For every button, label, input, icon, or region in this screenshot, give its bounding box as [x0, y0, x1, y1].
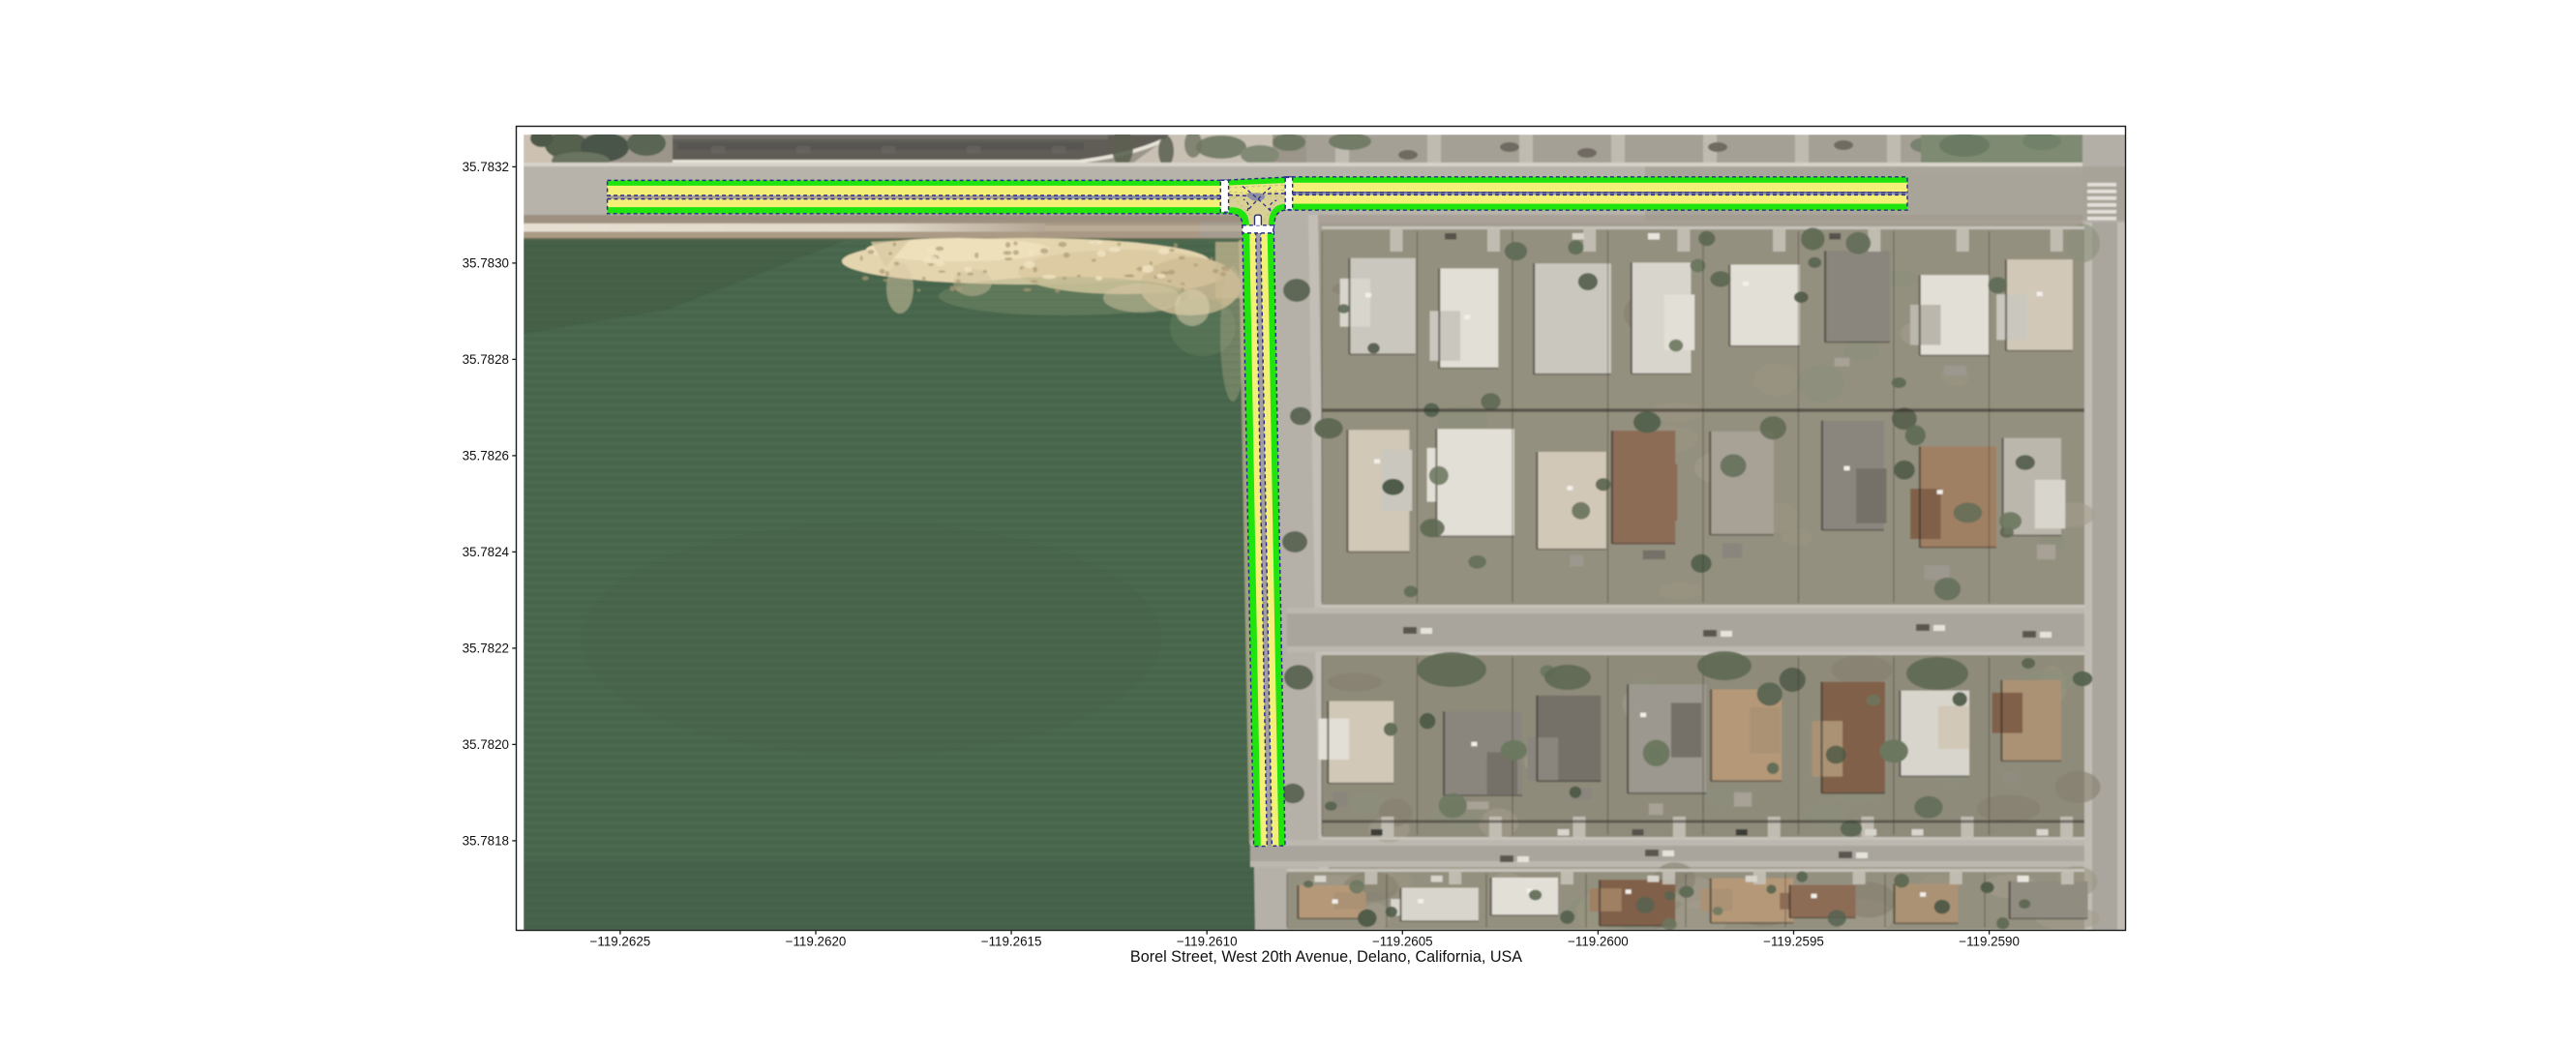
svg-text:35.7832: 35.7832 [463, 160, 509, 174]
svg-text:−119.2605: −119.2605 [1372, 935, 1433, 949]
svg-text:Borel Street, West 20th Avenue: Borel Street, West 20th Avenue, Delano, … [1130, 948, 1522, 966]
svg-text:−119.2610: −119.2610 [1177, 935, 1238, 949]
svg-text:35.7824: 35.7824 [463, 545, 510, 559]
svg-text:35.7828: 35.7828 [463, 352, 509, 367]
svg-text:−119.2625: −119.2625 [590, 935, 651, 949]
svg-text:35.7822: 35.7822 [463, 642, 509, 656]
svg-text:−119.2590: −119.2590 [1959, 935, 2020, 949]
svg-text:35.7820: 35.7820 [463, 737, 509, 752]
svg-text:−119.2595: −119.2595 [1763, 935, 1824, 949]
svg-text:−119.2620: −119.2620 [786, 935, 847, 949]
svg-text:35.7818: 35.7818 [463, 834, 509, 849]
svg-text:−119.2600: −119.2600 [1568, 935, 1629, 949]
svg-text:35.7826: 35.7826 [463, 449, 509, 463]
svg-text:−119.2615: −119.2615 [981, 935, 1042, 949]
svg-text:35.7830: 35.7830 [463, 256, 509, 271]
